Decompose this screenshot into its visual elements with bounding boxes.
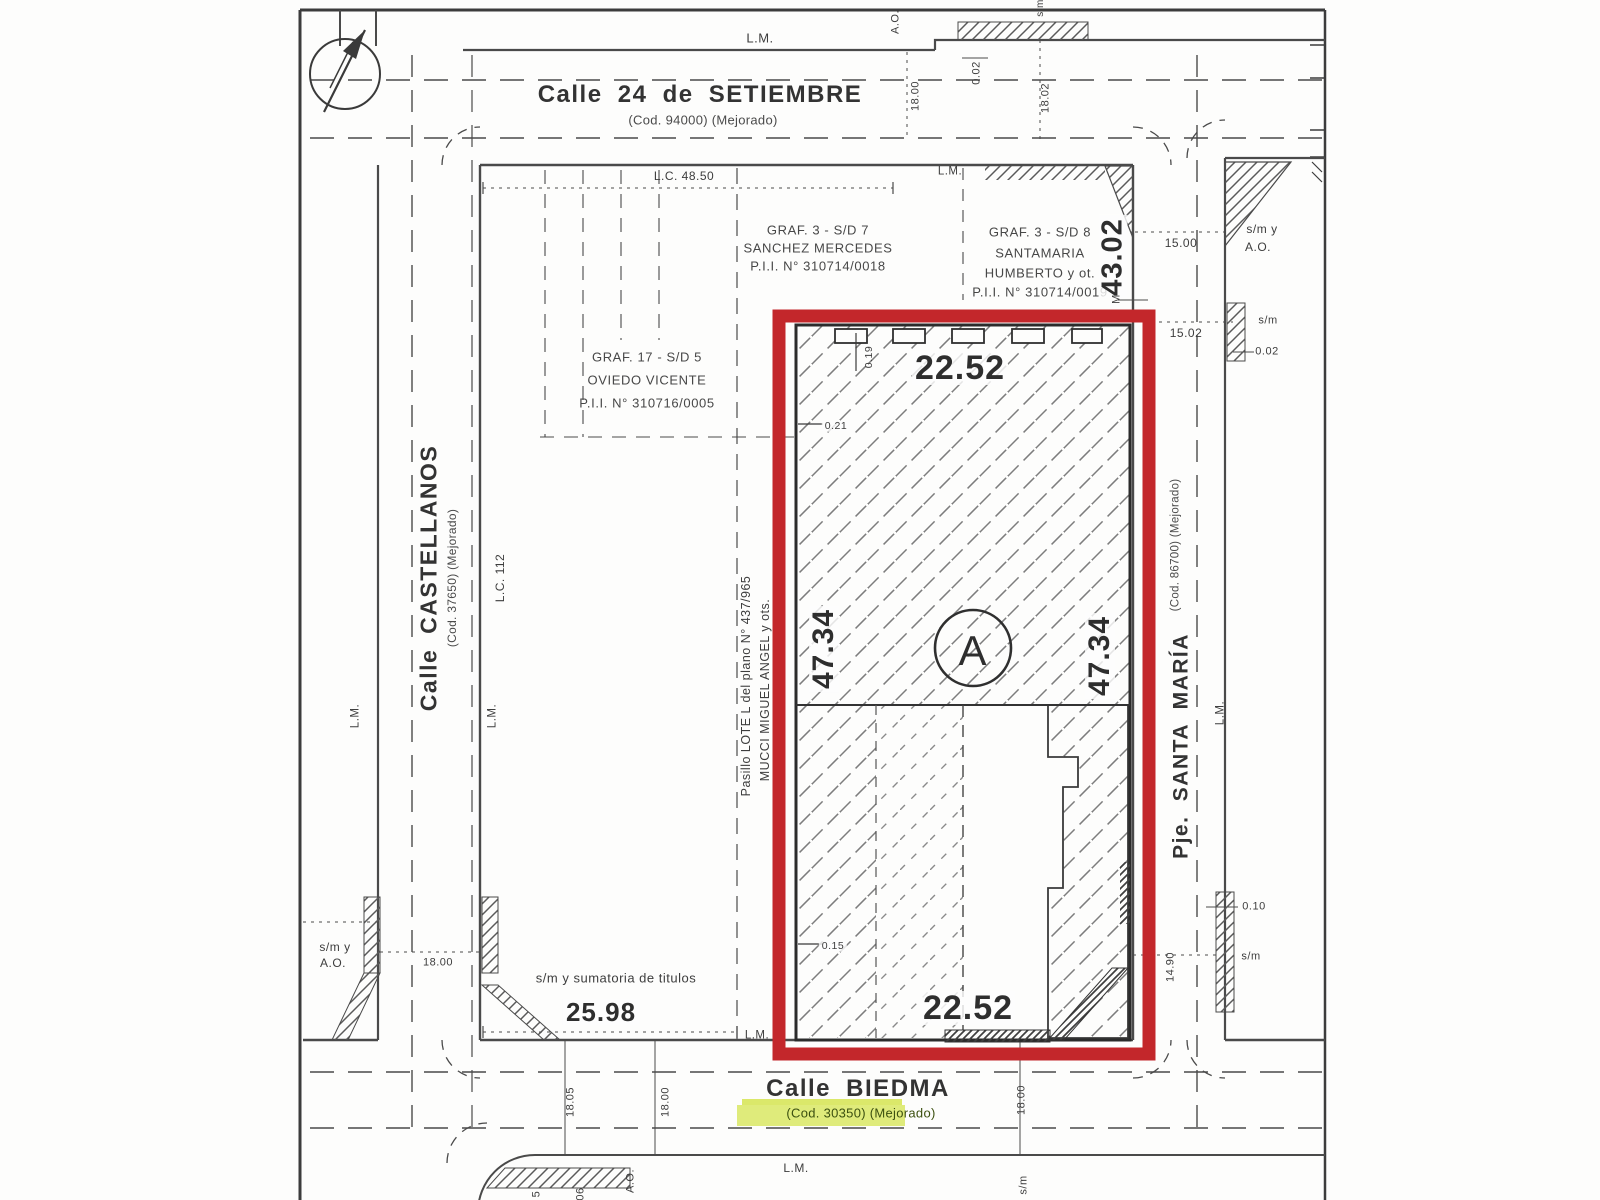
lm-label-right: L.M. [1215,701,1227,725]
dim-0-15: 0.15 [819,941,847,952]
bottom-edge-fragment-2: 06 [576,1187,587,1200]
parcel-graf17-line2: OVIEDO VICENTE [588,374,707,387]
parcel-graf7-line3: P.I.I. N° 310714/0018 [750,260,885,273]
dim-0-02-top: 0.02 [972,61,983,84]
street-code-bottom: (Cod. 30350) (Mejorado) [786,1107,935,1120]
dim-15-02: 15.02 [1170,327,1203,339]
north-arrow-icon [310,30,380,112]
smy-ao-right-line1: s/m y [1246,223,1277,235]
smy-ao-left-line2: A.O. [320,957,346,969]
parcel-graf8-line4: P.I.I. N° 310714/0019 [972,286,1107,299]
street-name-top: Calle 24 de SETIEMBRE [538,83,863,107]
lm-label-top: L.M. [746,32,773,45]
street-name-bottom: Calle BIEDMA [766,1077,950,1101]
plan-linework [0,0,1600,1200]
sm-label-top: s/m [1036,0,1046,17]
lm-label-biedma-north: L.M. [745,1030,769,1042]
dim-lot-bottom: 22.52 [920,991,1016,1025]
street-code-right: (Cod. 86700) (Mejorado) [1170,479,1182,612]
parcel-graf17-line3: P.I.I. N° 310716/0005 [579,397,714,410]
smy-ao-left-line1: s/m y [319,941,350,953]
parcel-graf17-line1: GRAF. 17 - S/D 5 [592,351,702,364]
bottom-edge-fragment-1: 5 [532,1191,543,1198]
dim-15-00: 15.00 [1165,237,1198,249]
dim-0-10: 0.10 [1242,902,1265,913]
m-label-right-edge: M [1112,294,1123,304]
dim-lot-top: 22.52 [912,351,1008,385]
dim-14-90: 14.90 [1166,952,1177,982]
parcel-graf7-line1: GRAF. 3 - S/D 7 [767,224,869,237]
sm-label-right-1: s/m [1258,316,1277,327]
dim-18-00-biedma-east: 18.00 [1017,1085,1028,1115]
dim-18-00-left: 18.00 [423,958,453,969]
parcel-letter-a: A [958,630,987,672]
ao-label-top: A.O. [891,10,902,34]
dim-0-21: 0.21 [822,421,850,432]
dim-0-02-east: 0.02 [1255,347,1278,358]
sm-label-right-2: s/m [1241,952,1260,963]
pasillo-line1: Pasillo LOTE L del plano N° 437/965 [740,576,753,797]
sm-label-biedma: s/m [1019,1175,1030,1194]
parcel-graf8-line3: HUMBERTO y ot. [985,267,1096,280]
dim-43-02: 43.02 [1099,215,1128,299]
street-code-top: (Cod. 94000) (Mejorado) [628,114,777,127]
pasillo-line2: MUCCI MIGUEL ANGEL y ots. [759,599,772,781]
parcel-graf8-line2: SANTAMARIA [995,247,1085,260]
ao-label-biedma: A.O. [626,1169,637,1193]
subject-lot [796,325,1130,1042]
street-name-left: Calle CASTELLANOS [418,445,441,711]
lm-label-bottom: L.M. [783,1162,808,1174]
lot-stepped-hatch [1048,705,1128,1038]
dim-18-05-biedma: 18.05 [566,1087,577,1117]
dim-18-00-biedma-west: 18.00 [661,1087,672,1117]
dim-lot-right: 47.34 [1085,613,1115,699]
lm-label-block-top: L.M. [938,166,962,178]
street-name-right: Pje. SANTA MARÍA [1171,633,1192,859]
lc-112-label: L.C. 112 [494,554,506,602]
smy-ao-right-line2: A.O. [1245,241,1271,253]
lm-label-left-1: L.M. [350,704,362,728]
sumatoria-note: s/m y sumatoria de titulos [536,972,696,985]
parcel-graf8-line1: GRAF. 3 - S/D 8 [989,226,1091,239]
dim-25-98: 25.98 [563,999,639,1025]
lc-48-50-label: L.C. 48.50 [654,170,714,182]
dim-lot-left: 47.34 [809,606,839,692]
dim-18-02-top: 18.02 [1041,83,1052,113]
cadastral-plan: L.M. Calle 24 de SETIEMBRE (Cod. 94000) … [0,0,1600,1200]
parcel-graf7-line2: SANCHEZ MERCEDES [743,242,892,255]
lm-label-left-2: L.M. [487,704,499,728]
street-code-left: (Cod. 37650) (Mejorado) [446,509,458,647]
dim-0-19: 0.19 [864,346,875,368]
dim-18-00-top: 18.00 [911,81,922,111]
